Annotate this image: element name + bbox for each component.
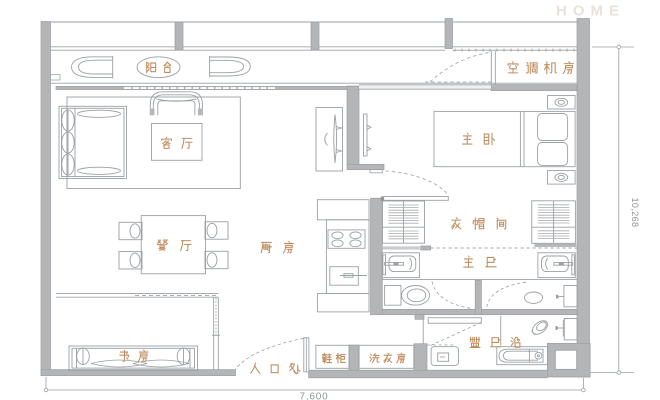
svg-text:10,268: 10,268 — [630, 198, 640, 228]
svg-text:HOME: HOME — [556, 3, 625, 20]
svg-text:7,600: 7,600 — [299, 392, 328, 400]
